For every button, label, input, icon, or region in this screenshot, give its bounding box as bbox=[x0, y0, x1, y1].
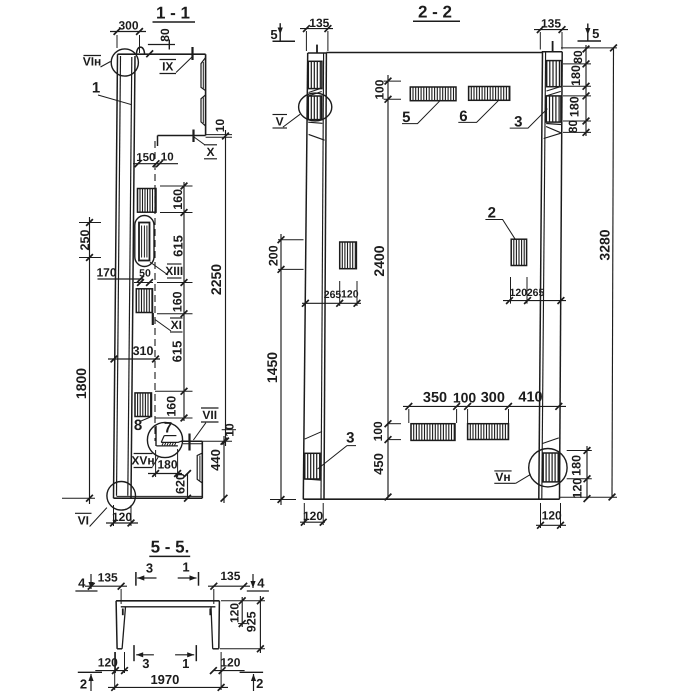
svg-text:135: 135 bbox=[98, 571, 118, 585]
svg-text:180: 180 bbox=[570, 455, 584, 476]
svg-text:V: V bbox=[276, 114, 284, 128]
svg-text:1450: 1450 bbox=[264, 352, 280, 383]
svg-text:120: 120 bbox=[570, 478, 584, 499]
svg-text:5: 5 bbox=[270, 27, 277, 42]
svg-text:410: 410 bbox=[518, 389, 542, 405]
svg-text:Vн: Vн bbox=[495, 470, 510, 484]
svg-text:4: 4 bbox=[257, 576, 265, 591]
svg-text:8: 8 bbox=[134, 417, 142, 434]
svg-text:1 - 1: 1 - 1 bbox=[156, 4, 190, 23]
svg-text:100: 100 bbox=[453, 389, 477, 405]
svg-text:5 - 5.: 5 - 5. bbox=[151, 538, 190, 557]
svg-text:170: 170 bbox=[96, 266, 116, 280]
svg-text:200: 200 bbox=[266, 245, 280, 266]
svg-text:300: 300 bbox=[481, 390, 505, 406]
svg-text:1: 1 bbox=[182, 559, 189, 574]
svg-text:450: 450 bbox=[371, 453, 386, 475]
svg-text:120: 120 bbox=[228, 603, 242, 623]
svg-text:265: 265 bbox=[527, 287, 545, 299]
svg-text:3: 3 bbox=[142, 656, 149, 671]
svg-text:180: 180 bbox=[569, 65, 583, 86]
svg-text:120: 120 bbox=[341, 289, 359, 301]
svg-text:615: 615 bbox=[169, 341, 184, 363]
svg-text:350: 350 bbox=[423, 390, 447, 406]
svg-text:1800: 1800 bbox=[73, 368, 89, 399]
svg-text:620: 620 bbox=[174, 473, 188, 494]
svg-text:440: 440 bbox=[208, 449, 223, 471]
svg-text:3280: 3280 bbox=[597, 229, 613, 260]
svg-text:1: 1 bbox=[92, 80, 100, 97]
svg-text:5: 5 bbox=[592, 26, 599, 41]
svg-text:50: 50 bbox=[139, 268, 151, 280]
svg-text:80: 80 bbox=[571, 50, 585, 64]
svg-text:135: 135 bbox=[220, 569, 240, 583]
svg-text:VII: VII bbox=[202, 408, 217, 422]
svg-text:1: 1 bbox=[182, 656, 189, 671]
svg-text:IX: IX bbox=[162, 60, 173, 74]
svg-text:XVн: XVн bbox=[131, 454, 154, 468]
svg-text:615: 615 bbox=[171, 235, 186, 257]
svg-text:10: 10 bbox=[213, 119, 227, 133]
svg-text:3: 3 bbox=[346, 429, 354, 446]
svg-text:VI: VI bbox=[78, 514, 89, 528]
svg-text:80: 80 bbox=[566, 120, 580, 134]
svg-text:925: 925 bbox=[244, 611, 258, 632]
svg-text:135: 135 bbox=[541, 17, 561, 31]
svg-text:2: 2 bbox=[256, 676, 263, 691]
svg-text:X: X bbox=[206, 145, 214, 159]
svg-text:180: 180 bbox=[157, 458, 177, 472]
svg-text:135: 135 bbox=[309, 16, 329, 30]
svg-text:310: 310 bbox=[133, 344, 154, 358]
svg-text:180: 180 bbox=[568, 96, 582, 117]
svg-text:2400: 2400 bbox=[371, 245, 387, 276]
svg-text:120: 120 bbox=[220, 655, 240, 669]
svg-text:1970: 1970 bbox=[150, 672, 179, 687]
svg-text:120: 120 bbox=[542, 509, 562, 523]
svg-text:3: 3 bbox=[146, 561, 153, 576]
svg-text:VIн: VIн bbox=[83, 55, 102, 69]
svg-text:160: 160 bbox=[171, 189, 185, 210]
svg-text:4: 4 bbox=[78, 576, 86, 591]
svg-text:265: 265 bbox=[324, 289, 342, 301]
svg-text:2: 2 bbox=[488, 205, 496, 222]
svg-text:300: 300 bbox=[118, 19, 138, 33]
svg-text:100: 100 bbox=[373, 79, 387, 99]
svg-text:160: 160 bbox=[171, 291, 185, 312]
svg-text:2250: 2250 bbox=[208, 264, 224, 295]
svg-text:100: 100 bbox=[371, 421, 385, 441]
svg-text:250: 250 bbox=[78, 230, 92, 251]
svg-text:XI: XI bbox=[171, 318, 182, 332]
svg-text:XIII: XIII bbox=[165, 264, 183, 278]
svg-text:7: 7 bbox=[164, 420, 172, 437]
svg-text:160: 160 bbox=[164, 396, 178, 417]
svg-text:2 - 2: 2 - 2 bbox=[418, 3, 452, 22]
svg-text:2: 2 bbox=[80, 677, 87, 692]
